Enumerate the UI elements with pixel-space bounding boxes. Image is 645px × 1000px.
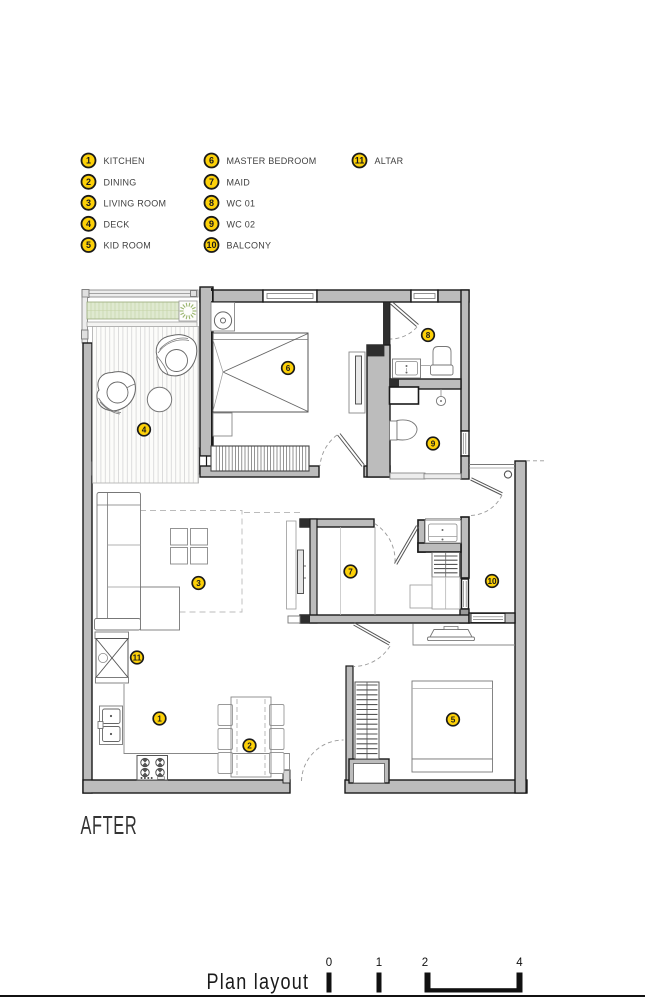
svg-text:DECK: DECK [104, 219, 130, 229]
svg-text:2: 2 [422, 957, 428, 969]
svg-text:WC 02: WC 02 [227, 219, 256, 229]
svg-text:8: 8 [426, 331, 431, 340]
svg-text:3: 3 [86, 198, 91, 208]
svg-text:Plan layout: Plan layout [207, 970, 310, 994]
svg-text:3: 3 [196, 579, 201, 588]
svg-text:1: 1 [157, 714, 162, 723]
svg-text:MAID: MAID [227, 177, 251, 187]
svg-text:ALTAR: ALTAR [375, 156, 404, 166]
svg-text:5: 5 [451, 715, 456, 724]
svg-text:2: 2 [86, 177, 91, 187]
svg-text:8: 8 [209, 198, 214, 208]
svg-text:MASTER BEDROOM: MASTER BEDROOM [227, 156, 317, 166]
svg-text:4: 4 [142, 425, 147, 434]
svg-text:AFTER: AFTER [81, 810, 138, 840]
svg-text:2: 2 [247, 741, 252, 750]
svg-text:4: 4 [86, 219, 91, 229]
svg-text:9: 9 [209, 219, 214, 229]
svg-text:9: 9 [431, 439, 436, 448]
svg-text:LIVING ROOM: LIVING ROOM [104, 198, 167, 208]
svg-text:10: 10 [487, 577, 497, 586]
svg-text:5: 5 [86, 240, 91, 250]
svg-text:DINING: DINING [104, 177, 137, 187]
svg-text:1: 1 [86, 156, 91, 166]
svg-text:BALCONY: BALCONY [227, 241, 272, 251]
svg-text:10: 10 [206, 240, 216, 250]
svg-text:1: 1 [376, 957, 382, 969]
svg-text:6: 6 [209, 156, 214, 166]
svg-text:4: 4 [516, 957, 523, 969]
svg-text:KID ROOM: KID ROOM [104, 241, 152, 251]
svg-text:7: 7 [209, 177, 214, 187]
svg-text:11: 11 [355, 156, 365, 166]
svg-text:7: 7 [348, 567, 353, 576]
svg-text:6: 6 [286, 364, 291, 373]
svg-text:KITCHEN: KITCHEN [104, 156, 145, 166]
svg-text:11: 11 [133, 653, 142, 662]
svg-text:WC 01: WC 01 [227, 198, 256, 208]
svg-text:0: 0 [326, 957, 332, 969]
